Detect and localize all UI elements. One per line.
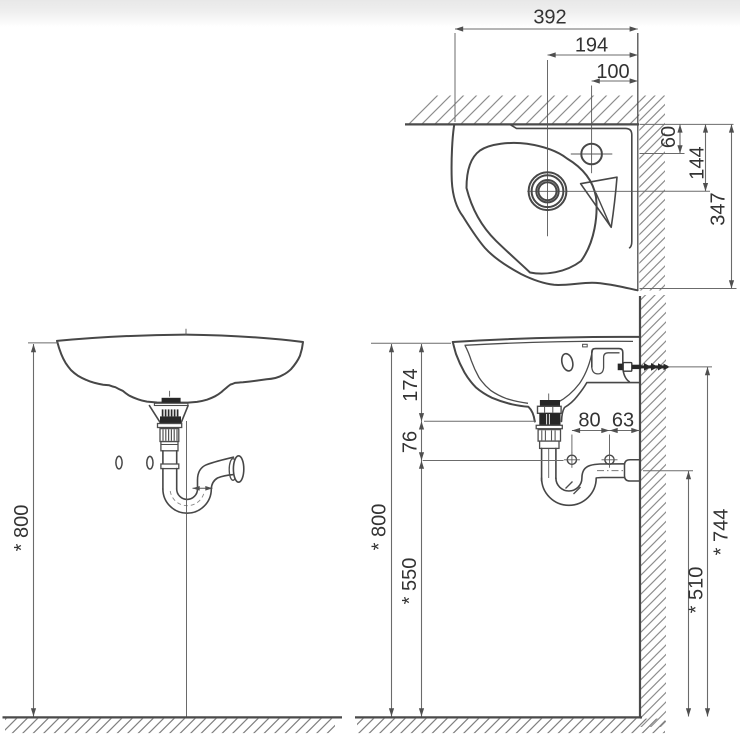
svg-text:* 510: * 510	[686, 567, 708, 614]
svg-text:392: 392	[533, 7, 566, 29]
svg-text:80: 80	[578, 410, 600, 432]
svg-text:144: 144	[687, 146, 709, 179]
svg-text:347: 347	[708, 192, 730, 225]
svg-text:* 800: * 800	[369, 504, 391, 551]
svg-text:194: 194	[575, 35, 608, 57]
svg-text:* 550: * 550	[399, 558, 421, 605]
svg-text:100: 100	[596, 61, 629, 83]
svg-text:174: 174	[400, 368, 422, 401]
svg-text:60: 60	[658, 126, 680, 148]
svg-text:63: 63	[612, 410, 634, 432]
svg-text:76: 76	[400, 431, 422, 453]
svg-text:* 800: * 800	[11, 505, 33, 552]
svg-text:* 744: * 744	[711, 509, 733, 556]
